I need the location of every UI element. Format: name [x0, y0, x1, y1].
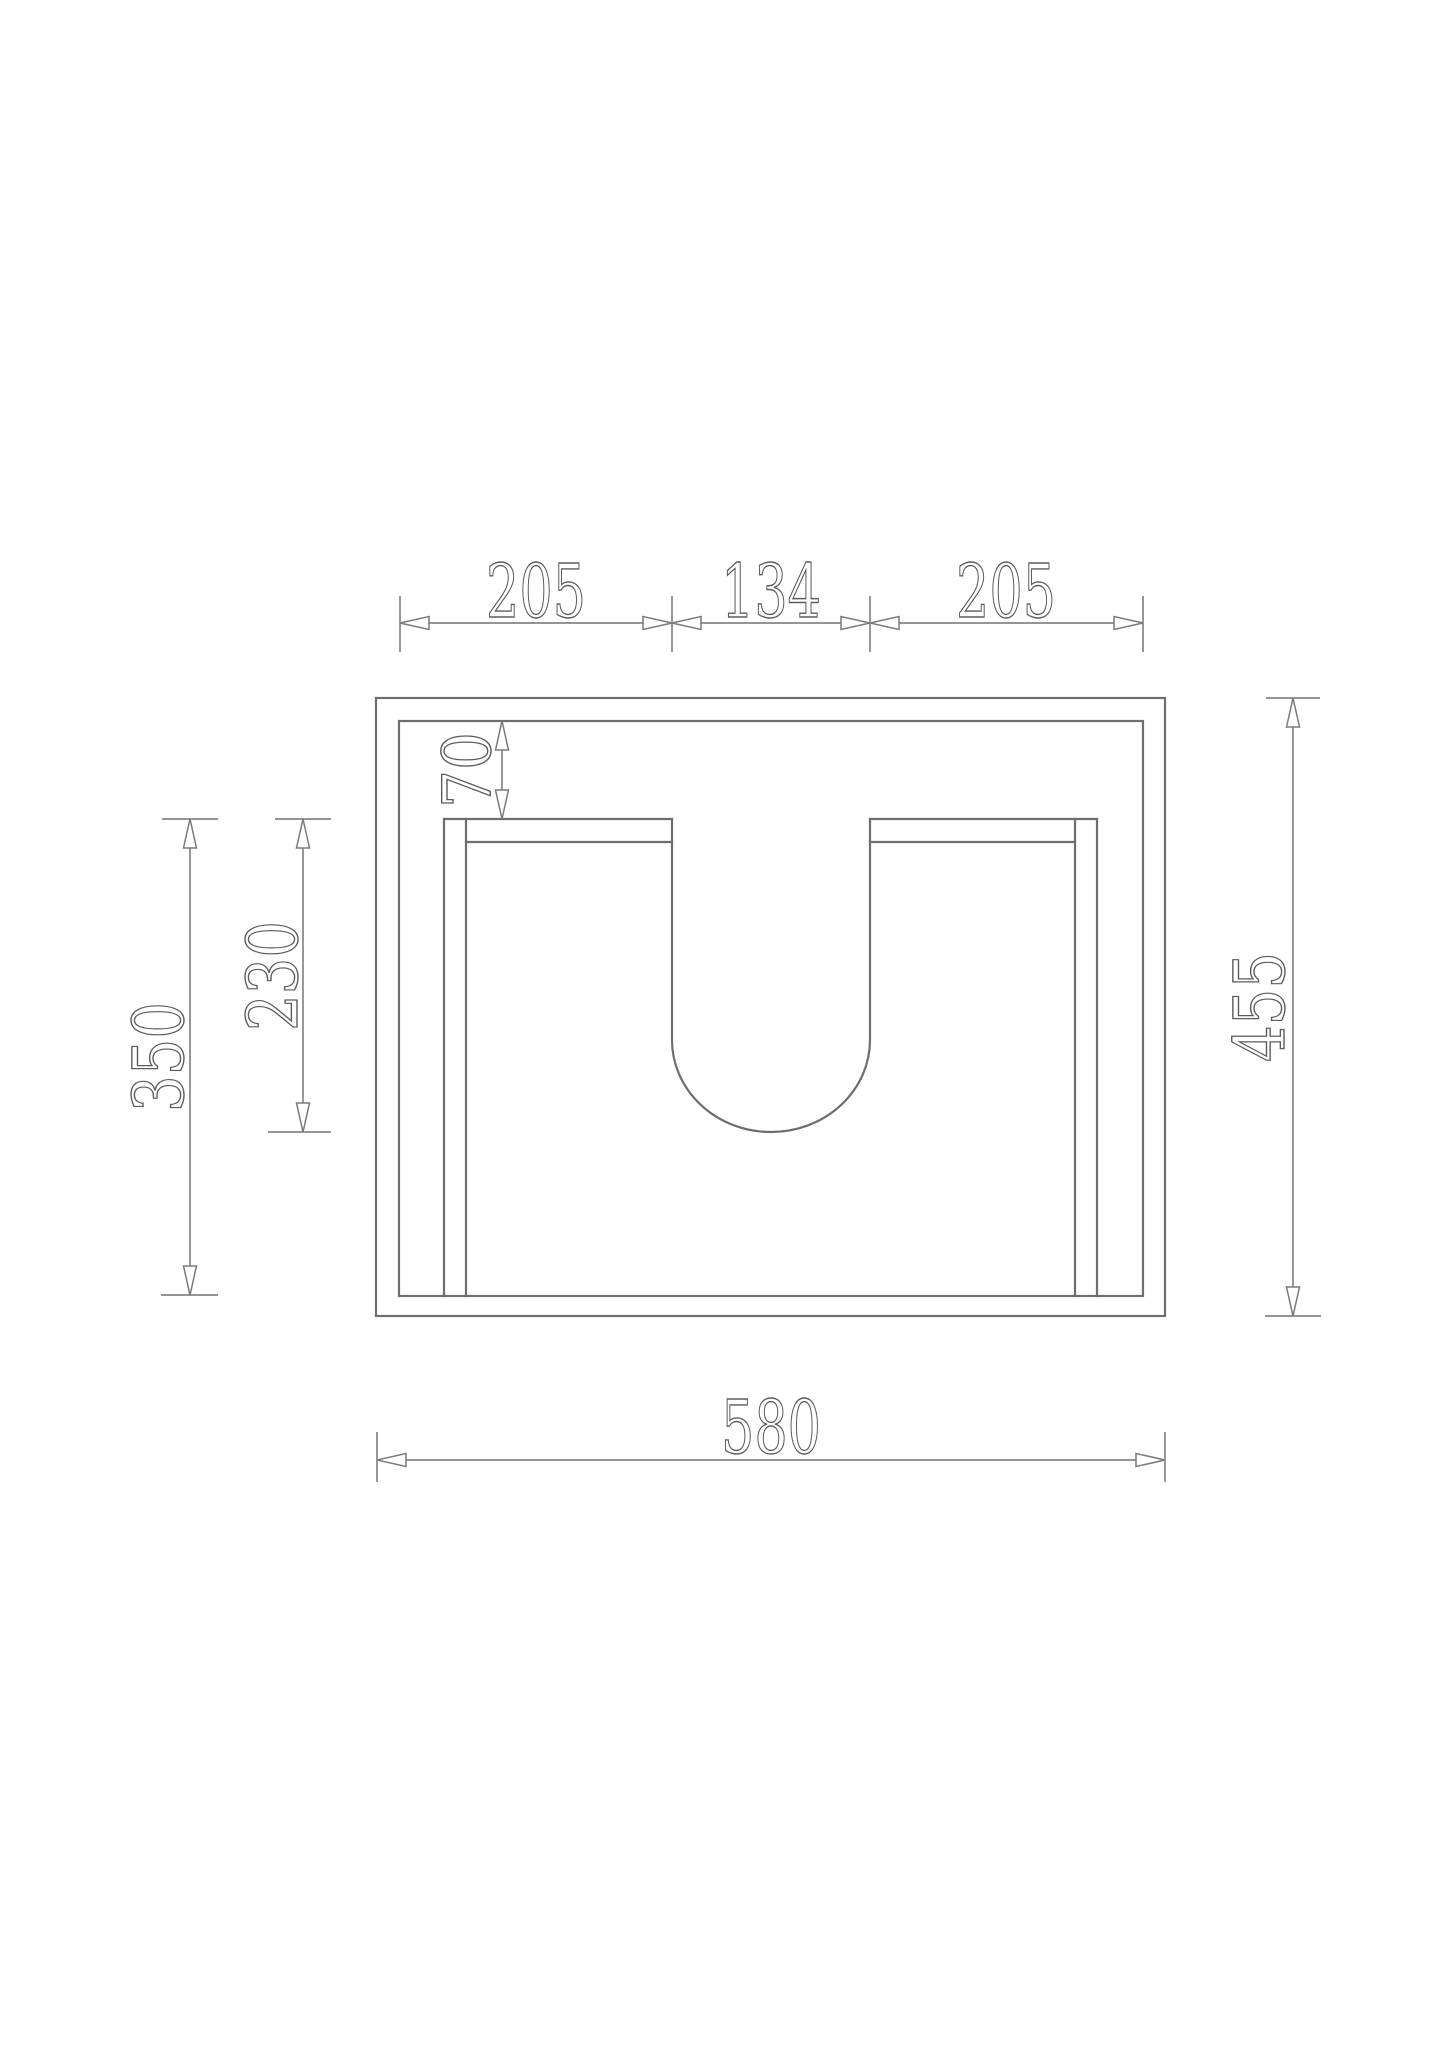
technical-drawing-page: 205 134 205 70 350 230	[0, 0, 1448, 2048]
dim-label-overall-height: 455	[1219, 952, 1301, 1062]
dim-label-cutout-depth: 230	[232, 921, 314, 1031]
arrowhead-up	[184, 819, 197, 848]
arrowhead-right	[1114, 617, 1143, 630]
dim-label-overall-width: 580	[721, 1385, 821, 1471]
dim-label-top-left-width: 205	[486, 549, 586, 635]
dim-label-top-right-width: 205	[956, 549, 1056, 635]
arrowhead-left	[870, 617, 899, 630]
dim-panel-height: 350	[118, 819, 218, 1295]
dim-rail-offset: 70	[429, 721, 509, 819]
left-side-panel	[444, 819, 672, 1296]
arrowhead-right	[1136, 1454, 1165, 1467]
arrowhead-right	[643, 617, 672, 630]
sink-cutout-u-shape	[672, 819, 870, 1132]
dim-label-rail-offset: 70	[429, 732, 506, 808]
right-side-panel	[870, 819, 1097, 1296]
arrowhead-down	[297, 1103, 310, 1132]
cabinet-dimension-diagram: 205 134 205 70 350 230	[0, 0, 1448, 2048]
dim-label-top-center-width: 134	[721, 549, 821, 635]
arrowhead-up	[1287, 698, 1300, 727]
dim-label-panel-height: 350	[118, 1002, 200, 1112]
dim-overall-height: 455	[1219, 698, 1321, 1316]
arrowhead-down	[1287, 1287, 1300, 1316]
arrowhead-right	[841, 617, 870, 630]
arrowhead-left	[377, 1454, 406, 1467]
dim-overall-width: 580	[377, 1385, 1165, 1482]
dim-cutout-depth: 230	[232, 819, 331, 1132]
arrowhead-left	[672, 617, 701, 630]
cabinet-inner-frame	[399, 721, 1143, 1296]
arrowhead-down	[184, 1266, 197, 1295]
dim-top-widths: 205 134 205	[400, 549, 1143, 652]
arrowhead-left	[400, 617, 429, 630]
arrowhead-up	[297, 819, 310, 848]
